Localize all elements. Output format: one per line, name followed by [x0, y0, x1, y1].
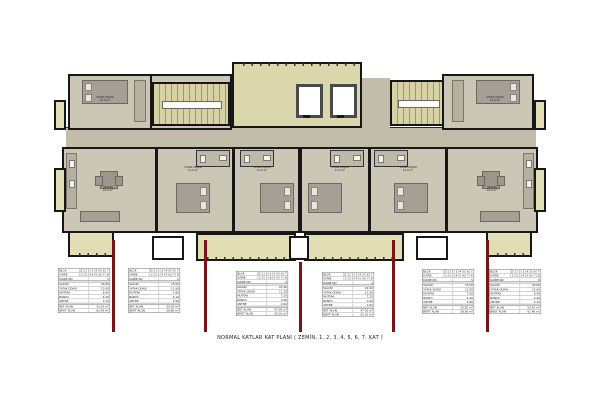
block-label-cell: BLOK: [489, 270, 510, 273]
room-label: ANTRE: [128, 299, 159, 302]
side-balcony: [54, 100, 66, 130]
room-row: ANTRE3.10: [489, 300, 540, 304]
schedule-header: BLOKZ1234567DAİRE12345678DAİRE NO1: [58, 268, 110, 281]
stove: [526, 180, 532, 188]
sink: [219, 155, 227, 161]
schedule-totals: NET ALAN50.20 m²BRÜT ALAN58.60 m²: [422, 305, 474, 314]
party-wall: [232, 149, 235, 231]
room-area: 11.90: [159, 287, 179, 290]
floor-cell: 7: [284, 272, 288, 275]
side-balcony: [54, 168, 66, 212]
room-area: 11.20: [353, 291, 373, 294]
room-label: SALON: [422, 283, 453, 286]
party-wall: [368, 149, 371, 231]
room-label: MUTFAK: [322, 295, 353, 298]
room-label: YATAK ODASI 11.2 m²: [320, 166, 361, 172]
drawing-sheet: YATAK ODASI 12.6 m² SALON 24.8 m² YATAK …: [0, 0, 600, 400]
room-area: 2.90: [159, 299, 179, 302]
room-area: 11.2 m²: [242, 169, 283, 172]
room-label: BANYO: [322, 299, 353, 302]
room-label: YATAK ODASI 11.9 m²: [388, 166, 429, 172]
room-area: 2.90: [453, 300, 473, 303]
room-label: BANYO: [236, 298, 267, 301]
room-area: 11.9 m²: [388, 169, 429, 172]
room-row: ANTRE2.60: [236, 302, 287, 306]
block-label-cell: BLOK: [128, 269, 149, 272]
wardrobe: [452, 80, 464, 122]
floor-cell: 7: [370, 273, 374, 276]
daire-label-cell: DAİRE: [58, 273, 79, 276]
schedule-header: BLOKZ1234567DAİRE12345678DAİRE NO5: [422, 269, 474, 282]
daire-no-value: 1: [89, 277, 109, 280]
daire-label-cell: DAİRE: [236, 276, 257, 279]
total-value: 53.10 m²: [89, 305, 109, 308]
pillow: [510, 83, 517, 91]
lower-apartment-block: [62, 147, 538, 233]
wc: [244, 155, 250, 163]
party-wall: [445, 149, 448, 231]
room-area: 12.6 m²: [85, 99, 126, 102]
room-area: 3.10: [520, 300, 540, 303]
room-label: SALON: [322, 286, 353, 289]
stair-handrail: [162, 101, 222, 109]
stove: [69, 180, 75, 188]
total-row: BRÜT ALAN58.60 m²: [422, 310, 473, 314]
kitchen-counter: [66, 153, 77, 209]
total-value: 50.20 m²: [453, 306, 473, 309]
balcony: [304, 233, 404, 261]
total-value: 47.30 m²: [267, 308, 287, 311]
bathroom: [374, 150, 408, 167]
schedule-totals: NET ALAN47.30 m²BRÜT ALAN55.10 m²: [322, 308, 374, 317]
room-label: SALON: [128, 282, 159, 285]
room-schedule-table: BLOKZ1234567DAİRE12345678DAİRE NO1SALON2…: [58, 268, 110, 314]
daire-no-value: 6: [520, 278, 540, 281]
room-area: 23.50: [453, 283, 473, 286]
room-label: MUTFAK: [489, 292, 520, 295]
room-label: YATAK ODASI: [236, 290, 267, 293]
elevator-shaft: [330, 84, 357, 118]
pillow: [311, 187, 318, 196]
pillow: [397, 187, 404, 196]
daire-no-row: DAİRE NO2: [128, 277, 179, 281]
room-area: 22.40: [353, 286, 373, 289]
total-label: NET ALAN: [422, 306, 453, 309]
daire-cell: 8: [176, 273, 180, 276]
lobby-connector: [362, 78, 390, 128]
double-bed: [176, 183, 210, 213]
daire-no-label: DAİRE NO: [128, 277, 159, 280]
balcony: [196, 233, 296, 261]
total-label: BRÜT ALAN: [58, 309, 89, 312]
room-area: 3.90: [353, 299, 373, 302]
side-balcony: [534, 100, 546, 130]
total-label: NET ALAN: [322, 309, 353, 312]
room-area: 7.20: [353, 295, 373, 298]
total-value: 47.30 m²: [353, 309, 373, 312]
room-row: ANTRE3.10: [58, 299, 109, 303]
party-wall-center: [298, 149, 302, 231]
room-area: 3.10: [89, 299, 109, 302]
room-area: 3.90: [267, 298, 287, 301]
staircase-left: [152, 82, 230, 126]
room-label: ANTRE: [322, 303, 353, 306]
double-bed: [394, 183, 428, 213]
sofa: [80, 211, 120, 222]
room-label: SALON 24.8 m²: [88, 186, 129, 192]
pillow: [284, 201, 291, 210]
room-area: 23.50: [159, 282, 179, 285]
floor-cell: 7: [537, 270, 541, 273]
room-area: 12.6 m²: [475, 99, 516, 102]
total-value: 53.10 m²: [520, 306, 540, 309]
floor-cell: 7: [106, 269, 110, 272]
schedule-body: SALON23.50YATAK ODASI11.90MUTFAK7.80BANY…: [128, 282, 180, 303]
daire-label-cell: DAİRE: [128, 273, 149, 276]
room-label: BANYO: [489, 296, 520, 299]
room-label: BANYO: [422, 296, 453, 299]
room-area: 24.80: [520, 283, 540, 286]
room-area: 4.20: [520, 296, 540, 299]
room-label: MUTFAK: [128, 291, 159, 294]
total-label: NET ALAN: [489, 306, 520, 309]
total-label: NET ALAN: [58, 305, 89, 308]
schedule-totals: NET ALAN53.10 m²BRÜT ALAN61.40 m²: [489, 305, 541, 314]
room-area: 2.60: [353, 303, 373, 306]
total-label: NET ALAN: [128, 305, 159, 308]
light-well: [416, 236, 448, 260]
room-label: YATAK ODASI: [489, 288, 520, 291]
floor-cell: 7: [176, 269, 180, 272]
schedule-totals: NET ALAN47.30 m²BRÜT ALAN55.10 m²: [236, 307, 288, 316]
room-label: ANTRE: [58, 299, 89, 302]
room-area: 8.40: [520, 292, 540, 295]
room-label: BANYO: [58, 295, 89, 298]
total-value: 61.40 m²: [520, 310, 540, 313]
total-row: BRÜT ALAN61.40 m²: [58, 309, 109, 313]
daire-no-row: DAİRE NO5: [422, 278, 473, 282]
schedule-totals: NET ALAN50.20 m²BRÜT ALAN58.60 m²: [128, 304, 180, 313]
room-label: BANYO: [128, 295, 159, 298]
daire-no-value: 3: [267, 280, 287, 283]
daire-no-label: DAİRE NO: [236, 280, 267, 283]
block-label-cell: BLOK: [236, 272, 257, 275]
daire-no-row: DAİRE NO3: [236, 280, 287, 284]
daire-no-row: DAİRE NO4: [322, 281, 373, 285]
room-area: 24.8 m²: [88, 189, 129, 192]
schedule-body: SALON22.40YATAK ODASI11.20MUTFAK7.20BANY…: [322, 286, 374, 307]
total-value: 58.60 m²: [159, 309, 179, 312]
total-label: BRÜT ALAN: [489, 310, 520, 313]
room-area: 24.8 m²: [472, 189, 513, 192]
room-area: 7.80: [453, 292, 473, 295]
section-line: [299, 262, 302, 332]
daire-label-cell: DAİRE: [422, 274, 443, 277]
drawing-title: NORMAL KATLAR KAT PLANI ( ZEMİN, 1, 2, 3…: [0, 335, 600, 341]
room-area: 22.40: [267, 285, 287, 288]
stair-handrail: [398, 100, 440, 108]
room-area: 2.60: [267, 302, 287, 305]
wardrobe: [134, 80, 146, 122]
balcony: [486, 231, 532, 257]
room-area: 4.10: [159, 295, 179, 298]
room-row: ANTRE2.90: [422, 300, 473, 304]
daire-label-cell: DAİRE: [489, 274, 510, 277]
room-area: 11.90: [453, 288, 473, 291]
wc: [378, 155, 384, 163]
daire-no-row: DAİRE NO6: [489, 278, 540, 282]
party-wall: [155, 149, 158, 231]
daire-cell: 8: [106, 273, 110, 276]
room-area: 12.60: [89, 287, 109, 290]
room-schedule-table: BLOKZ1234567DAİRE12345678DAİRE NO4SALON2…: [322, 272, 374, 318]
room-area: 4.20: [89, 295, 109, 298]
schedule-body: SALON24.80YATAK ODASI12.60MUTFAK8.40BANY…: [489, 283, 541, 304]
balcony: [68, 231, 114, 257]
room-label: SALON: [236, 285, 267, 288]
schedule-header: BLOKZ1234567DAİRE12345678DAİRE NO3: [236, 271, 288, 284]
side-balcony: [534, 168, 546, 212]
sink: [69, 160, 75, 168]
daire-no-row: DAİRE NO1: [58, 277, 109, 281]
room-label: ANTRE: [422, 300, 453, 303]
room-label: YATAK ODASI: [128, 287, 159, 290]
total-row: BRÜT ALAN58.60 m²: [128, 309, 179, 313]
room-row: ANTRE2.90: [128, 299, 179, 303]
total-value: 50.20 m²: [159, 305, 179, 308]
total-row: BRÜT ALAN55.10 m²: [236, 312, 287, 316]
schedule-header: BLOKZ1234567DAİRE12345678DAİRE NO6: [489, 269, 541, 282]
bathroom: [196, 150, 230, 167]
room-label: YATAK ODASI 12.6 m²: [475, 96, 516, 102]
room-label: YATAK ODASI 11.2 m²: [242, 166, 283, 172]
kitchen-counter: [523, 153, 534, 209]
double-bed: [308, 183, 342, 213]
schedule-header: BLOKZ1234567DAİRE12345678DAİRE NO2: [128, 268, 180, 281]
staircase-right: [390, 80, 444, 126]
room-area: 7.20: [267, 294, 287, 297]
daire-no-value: 5: [453, 278, 473, 281]
room-schedule-table: BLOKZ1234567DAİRE12345678DAİRE NO5SALON2…: [422, 269, 474, 315]
elevator-door: [337, 115, 344, 118]
daire-no-label: DAİRE NO: [489, 278, 520, 281]
double-bed: [260, 183, 294, 213]
daire-no-label: DAİRE NO: [422, 278, 453, 281]
room-row: ANTRE2.60: [322, 303, 373, 307]
schedule-header: BLOKZ1234567DAİRE12345678DAİRE NO4: [322, 272, 374, 285]
daire-label-cell: DAİRE: [322, 277, 343, 280]
total-label: BRÜT ALAN: [128, 309, 159, 312]
room-area: 7.80: [159, 291, 179, 294]
corridor: [66, 127, 536, 149]
total-row: BRÜT ALAN55.10 m²: [322, 313, 373, 317]
total-value: 55.10 m²: [267, 312, 287, 315]
block-label-cell: BLOK: [58, 269, 79, 272]
wc: [334, 155, 340, 163]
daire-cell: 8: [537, 274, 541, 277]
room-label: ANTRE: [489, 300, 520, 303]
daire-no-label: DAİRE NO: [58, 277, 89, 280]
floor-cell: 7: [470, 270, 474, 273]
sink: [353, 155, 361, 161]
block-label-cell: BLOK: [322, 273, 343, 276]
total-label: BRÜT ALAN: [236, 312, 267, 315]
room-label: MUTFAK: [58, 291, 89, 294]
daire-cell: 8: [470, 274, 474, 277]
schedule-body: SALON24.80YATAK ODASI12.60MUTFAK8.40BANY…: [58, 282, 110, 303]
total-value: 58.60 m²: [453, 310, 473, 313]
section-line: [392, 240, 395, 332]
sink: [397, 155, 405, 161]
block-label-cell: BLOK: [422, 270, 443, 273]
sink: [526, 160, 532, 168]
sofa: [480, 211, 520, 222]
pillow: [284, 187, 291, 196]
bathroom: [330, 150, 364, 167]
sink: [263, 155, 271, 161]
room-area: 4.10: [453, 296, 473, 299]
terrace: [232, 62, 362, 128]
total-label: BRÜT ALAN: [322, 313, 353, 316]
daire-no-value: 4: [353, 281, 373, 284]
pillow: [200, 201, 207, 210]
daire-no-value: 2: [159, 277, 179, 280]
room-schedule-table: BLOKZ1234567DAİRE12345678DAİRE NO6SALON2…: [489, 269, 541, 315]
schedule-body: SALON23.50YATAK ODASI11.90MUTFAK7.80BANY…: [422, 283, 474, 304]
pillow: [311, 201, 318, 210]
schedule-totals: NET ALAN53.10 m²BRÜT ALAN61.40 m²: [58, 304, 110, 313]
room-label: SALON: [58, 282, 89, 285]
room-label: YATAK ODASI: [422, 288, 453, 291]
pillow: [397, 201, 404, 210]
room-label: YATAK ODASI: [58, 287, 89, 290]
elevator-shaft: [296, 84, 323, 118]
total-row: BRÜT ALAN61.40 m²: [489, 310, 540, 314]
total-value: 55.10 m²: [353, 313, 373, 316]
light-well: [289, 236, 309, 260]
section-line: [204, 240, 207, 332]
schedule-body: SALON22.40YATAK ODASI11.20MUTFAK7.20BANY…: [236, 285, 288, 306]
room-label: MUTFAK: [422, 292, 453, 295]
light-well: [152, 236, 184, 260]
pillow: [200, 187, 207, 196]
pillow: [85, 83, 92, 91]
room-label: MUTFAK: [236, 294, 267, 297]
daire-cell: 8: [370, 277, 374, 280]
room-area: 12.60: [520, 288, 540, 291]
room-schedule-table: BLOKZ1234567DAİRE12345678DAİRE NO2SALON2…: [128, 268, 180, 314]
daire-no-label: DAİRE NO: [322, 281, 353, 284]
room-label: SALON 24.8 m²: [472, 186, 513, 192]
room-label: YATAK ODASI 12.6 m²: [85, 96, 126, 102]
room-label: ANTRE: [236, 302, 267, 305]
section-line: [112, 240, 115, 332]
room-label: YATAK ODASI: [322, 291, 353, 294]
room-area: 8.40: [89, 291, 109, 294]
daire-cell: 8: [284, 276, 288, 279]
room-area: 11.20: [267, 290, 287, 293]
total-label: NET ALAN: [236, 308, 267, 311]
wc: [200, 155, 206, 163]
room-label: SALON: [489, 283, 520, 286]
total-label: BRÜT ALAN: [422, 310, 453, 313]
bathroom: [240, 150, 274, 167]
room-label: YATAK ODASI 11.9 m²: [173, 166, 214, 172]
total-value: 61.40 m²: [89, 309, 109, 312]
room-area: 11.9 m²: [173, 169, 214, 172]
room-area: 11.2 m²: [320, 169, 361, 172]
elevator-door: [303, 115, 310, 118]
room-schedule-table: BLOKZ1234567DAİRE12345678DAİRE NO3SALON2…: [236, 271, 288, 317]
room-area: 24.80: [89, 282, 109, 285]
